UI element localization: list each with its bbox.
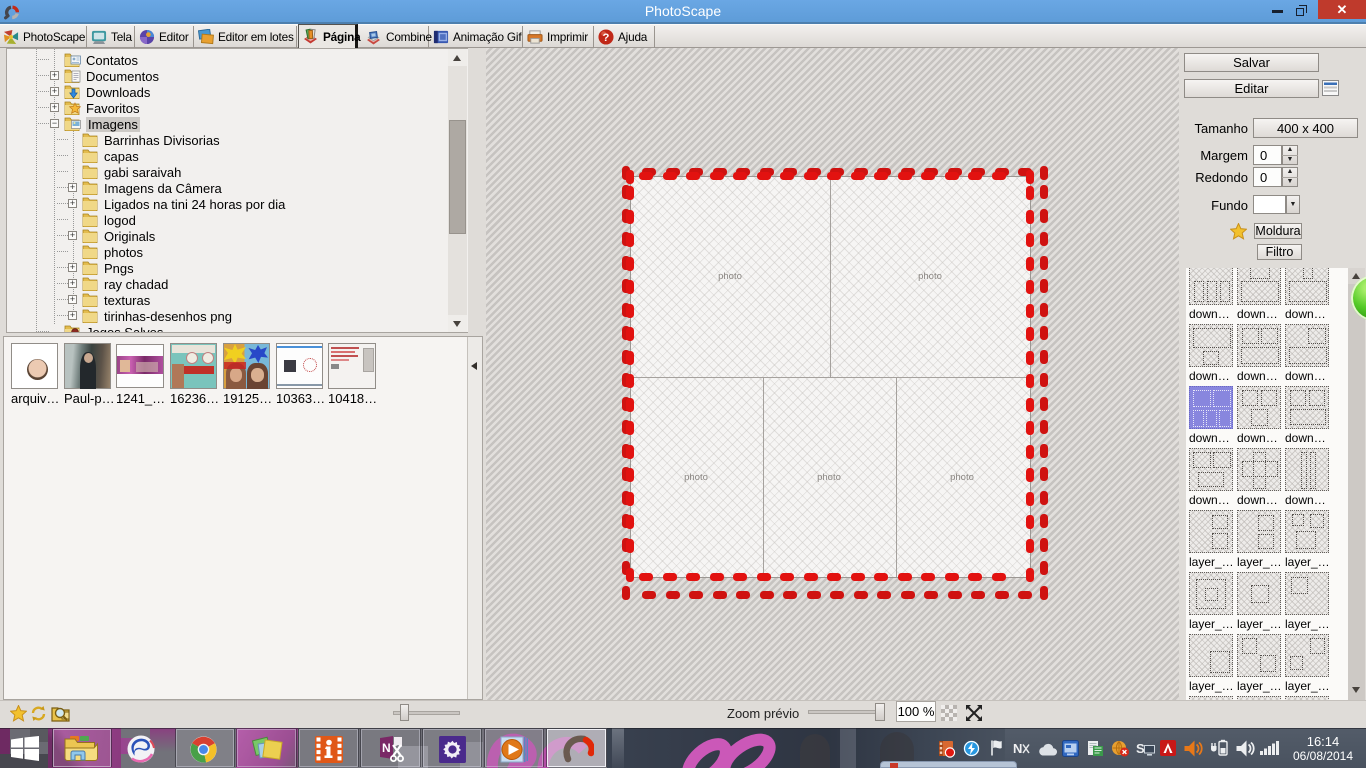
svg-text:N: N xyxy=(1013,741,1022,756)
svg-text:S: S xyxy=(1136,741,1145,756)
svg-text:N: N xyxy=(382,741,391,755)
